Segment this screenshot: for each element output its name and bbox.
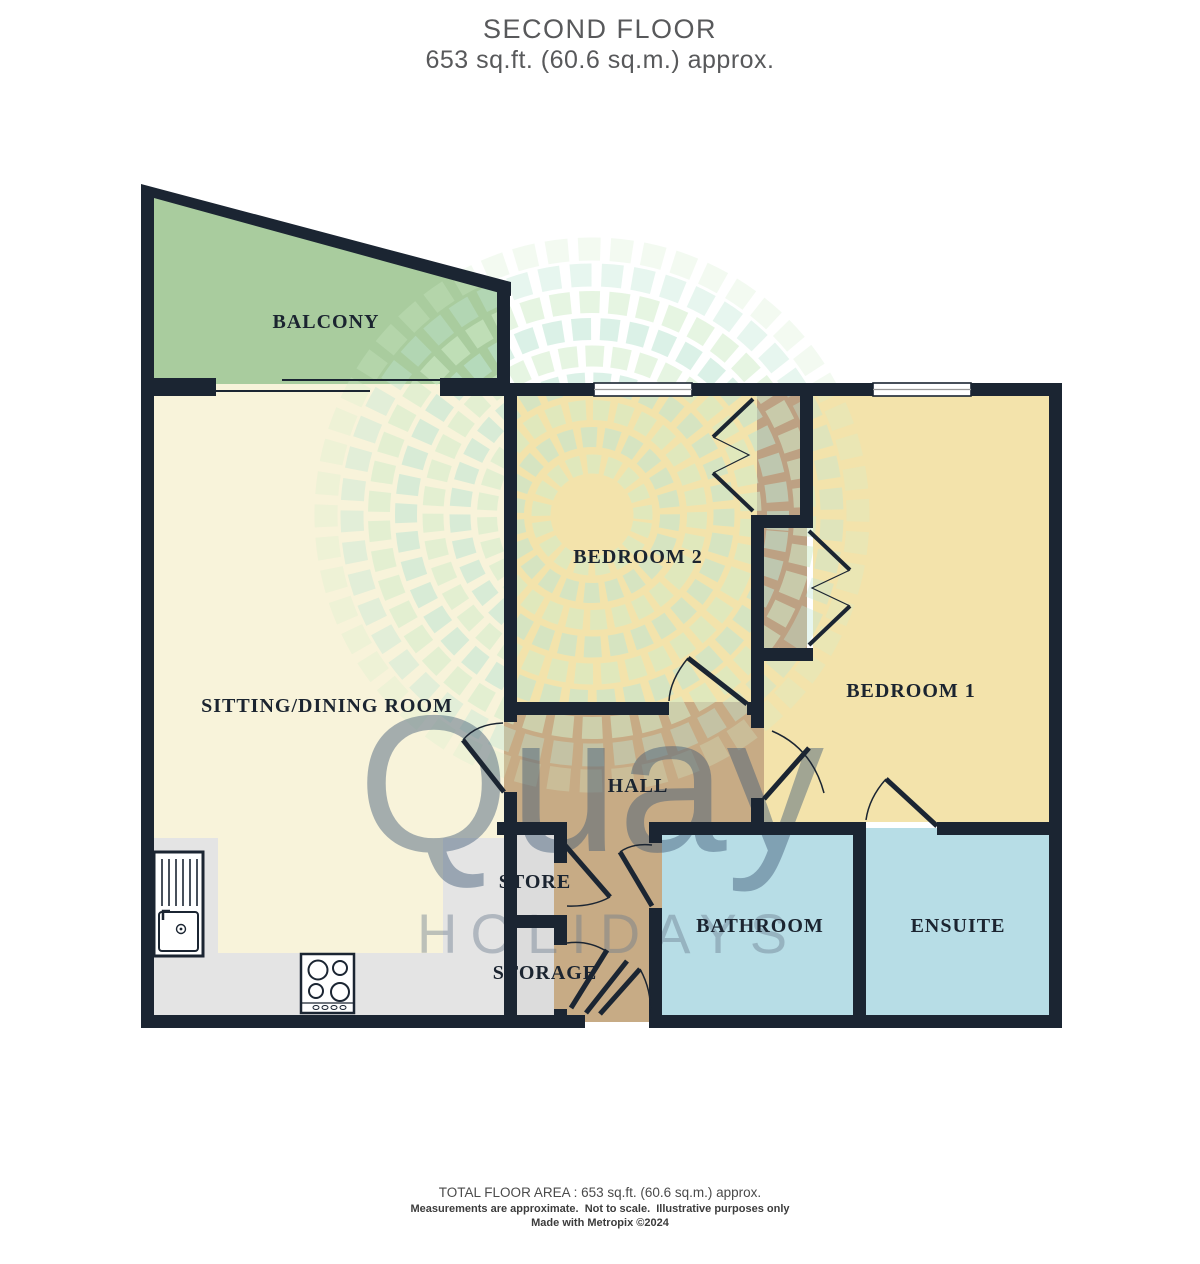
wall-store-storage-divider — [504, 915, 567, 928]
wall-top-a — [504, 383, 594, 396]
wall-bottom-left — [141, 1015, 585, 1028]
wall-wardrobe1-bottom — [764, 648, 813, 661]
wall-outer-left — [141, 188, 154, 1028]
wall-bottom-right — [649, 1015, 1062, 1028]
bedroom2-label: BEDROOM 2 — [573, 546, 703, 568]
disclaimer-text: Measurements are approximate. Not to sca… — [0, 1202, 1200, 1218]
wall-bedroom2-wardrobe1 — [751, 515, 764, 715]
sink-unit-icon — [154, 852, 203, 956]
ensuite-label: ENSUITE — [911, 915, 1006, 937]
wall-balcony-sill-left — [141, 378, 216, 396]
wall-bathroom-left-a — [649, 822, 662, 843]
sitting-room-label: SITTING/DINING ROOM — [201, 695, 453, 717]
wall-bathroom-ensuite — [853, 822, 866, 1028]
wall-outer-right — [1049, 383, 1062, 1028]
wall-store-right-a — [554, 822, 567, 863]
wall-ensuite-top — [937, 822, 1062, 835]
wall-top-c — [971, 383, 1062, 396]
wall-hall-bedroom1-a — [751, 715, 764, 728]
total-floor-area-text: TOTAL FLOOR AREA : 653 sq.ft. (60.6 sq.m… — [0, 1184, 1200, 1202]
wall-bedroom2-hall-a — [504, 702, 669, 715]
bedroom2-window — [594, 383, 692, 396]
wall-sitting-bedroom2 — [504, 383, 517, 722]
bedroom1-label: BEDROOM 1 — [846, 680, 976, 702]
hall-label: HALL — [608, 775, 669, 797]
bedroom1-window — [873, 383, 971, 396]
wall-top-b — [692, 383, 873, 396]
wall-balcony-sill-right — [440, 378, 510, 396]
metropix-credit-text: Made with Metropix ©2024 — [0, 1217, 1200, 1230]
hob-icon — [301, 954, 354, 1013]
plan-footer: TOTAL FLOOR AREA : 653 sq.ft. (60.6 sq.m… — [0, 1184, 1200, 1231]
wall-bathroom-top — [649, 822, 866, 835]
floorplan-canvas: Quay HOLIDAYS BALCONY SITTING/DINING ROO… — [0, 0, 1200, 1264]
bathroom-label: BATHROOM — [696, 915, 824, 937]
balcony-label: BALCONY — [272, 311, 379, 333]
wall-wardrobe2-bedroom1 — [800, 383, 813, 528]
